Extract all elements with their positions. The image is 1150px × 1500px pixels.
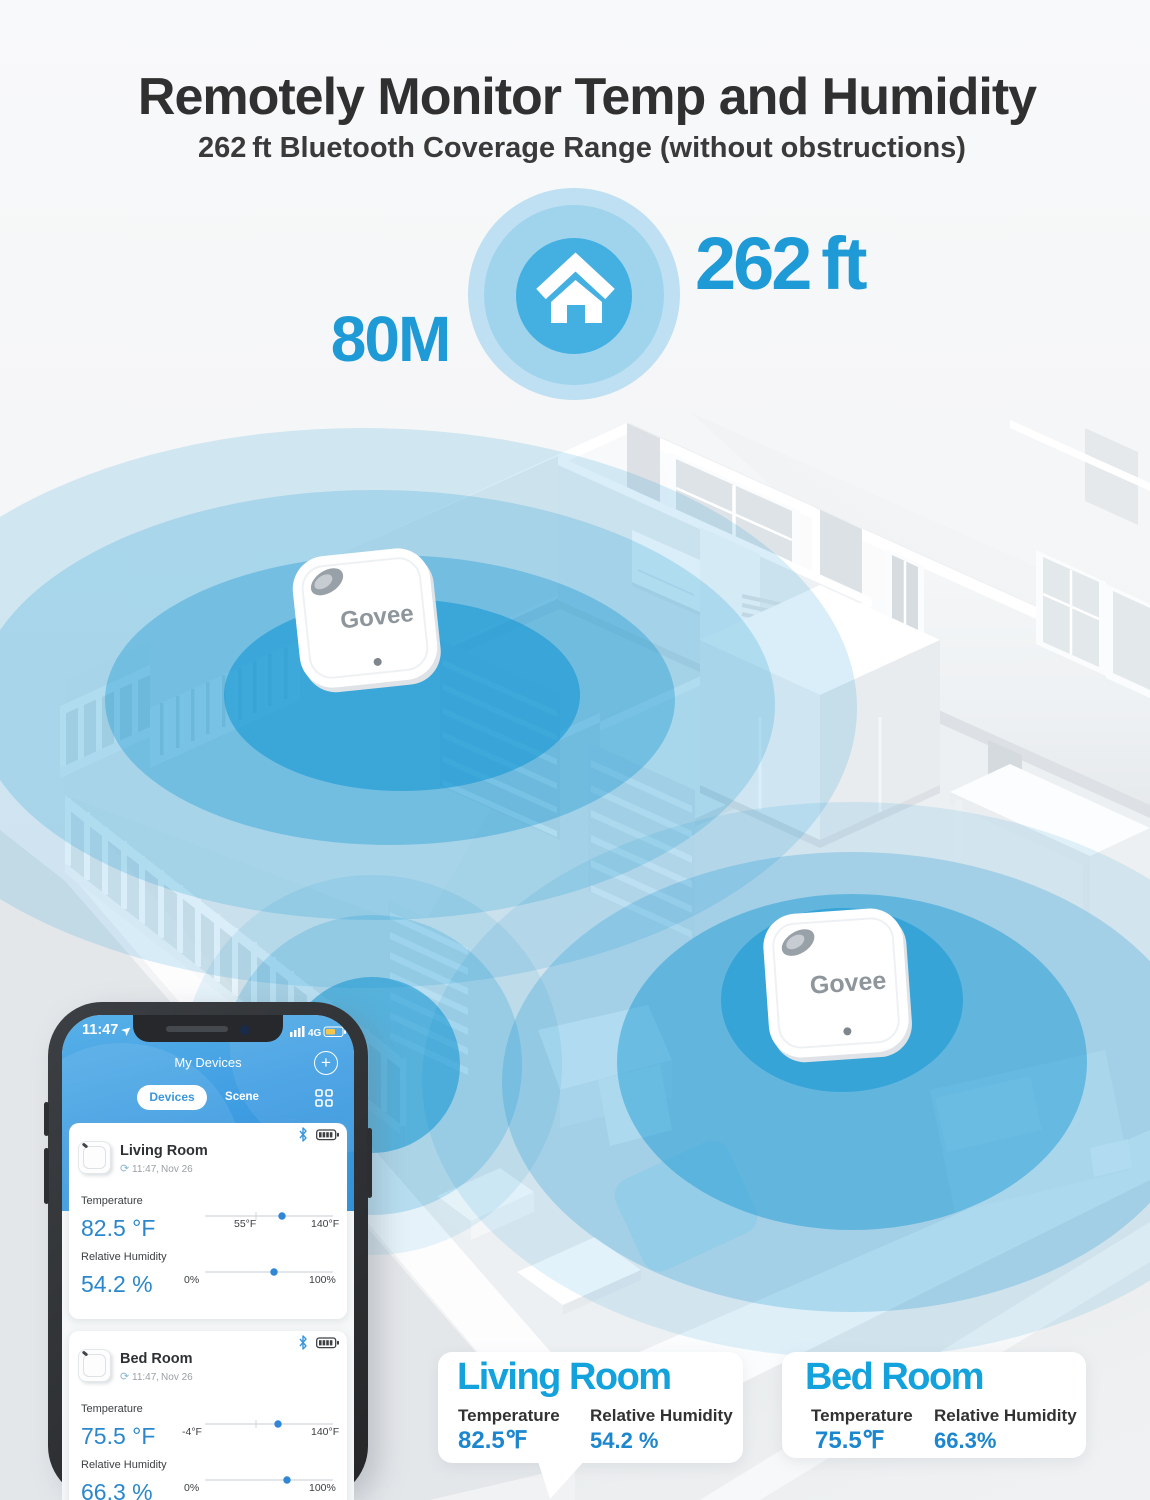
svg-text:4G: 4G	[308, 1028, 322, 1038]
svg-text:Govee: Govee	[809, 967, 887, 1000]
